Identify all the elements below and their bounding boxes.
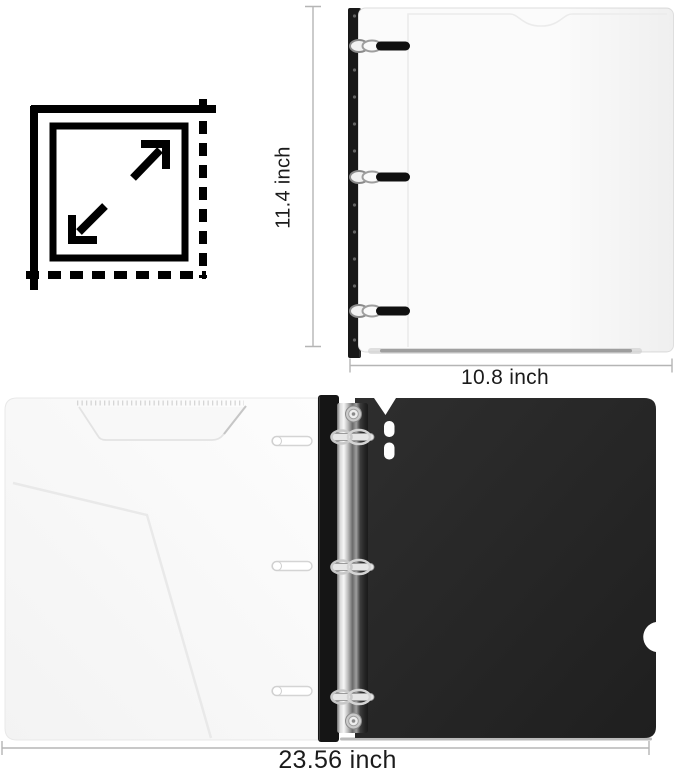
binder-ring-top: [331, 430, 374, 444]
open-width-dimension-label: 23.56 inch: [260, 746, 415, 772]
scene-graphics: [0, 0, 679, 772]
height-dimension-label: 11.4 inch: [273, 126, 296, 250]
binder-ring-middle: [331, 560, 374, 574]
open-binder-black-panel: [355, 398, 656, 738]
expand-arrow-ne-icon: [133, 144, 166, 178]
binder-ring-bottom: [331, 690, 374, 704]
dimensions-icon: [26, 99, 216, 290]
width-dimension-label: 10.8 inch: [440, 366, 570, 390]
height-measure-line: [305, 6, 321, 347]
open-binder: [5, 395, 656, 742]
card-pocket-flap: [79, 407, 245, 440]
ring-mechanism-rivet-bottom: [346, 713, 362, 729]
open-binder-shadow: [340, 738, 652, 741]
closed-binder-shadow-core: [380, 349, 632, 353]
ring-mechanism-rivet-top: [346, 406, 362, 422]
ring-clip-bottom: [350, 305, 410, 317]
cover-edge-shading: [555, 8, 673, 352]
ring-clip-middle: [350, 171, 410, 183]
closed-binder: [348, 8, 674, 358]
ring-clip-top: [350, 40, 410, 52]
product-dimension-image: 11.4 inch 10.8 inch 23.56 inch: [0, 0, 679, 772]
expand-arrow-sw-icon: [72, 206, 105, 240]
